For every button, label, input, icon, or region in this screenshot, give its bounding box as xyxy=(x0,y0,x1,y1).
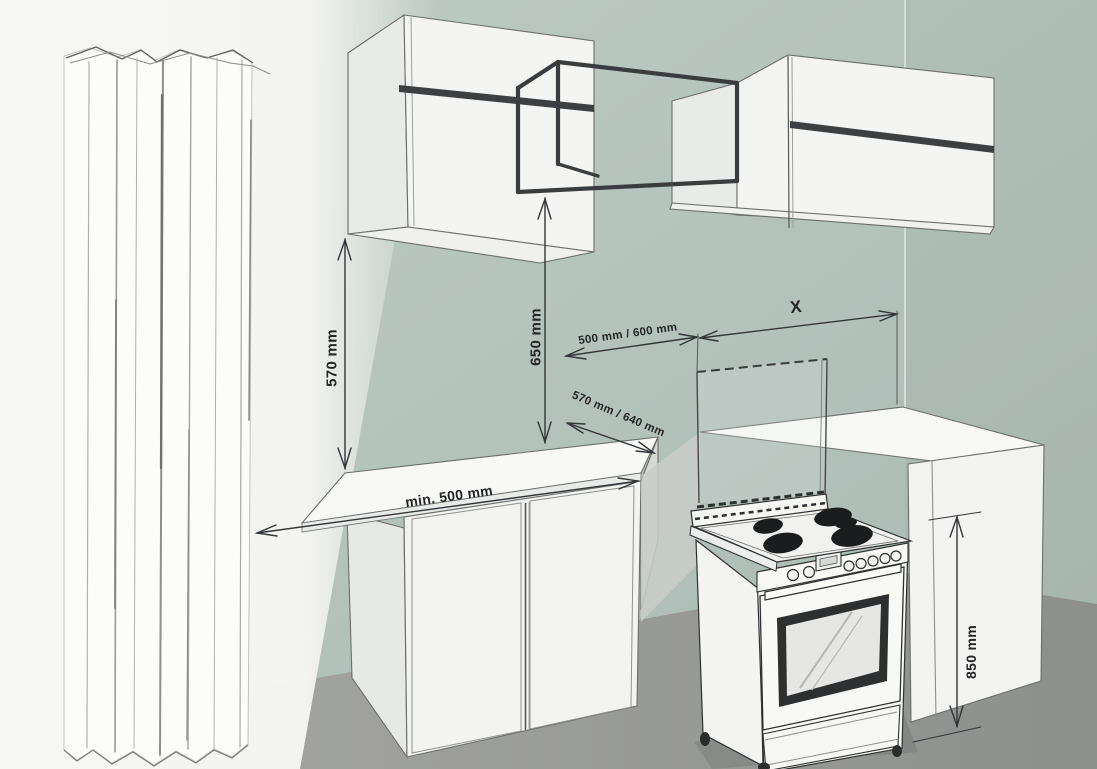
wall-cabinet-left-front xyxy=(404,15,594,252)
foot xyxy=(892,745,902,757)
curtain xyxy=(64,47,270,766)
knob xyxy=(788,570,799,581)
knob xyxy=(880,554,890,564)
dim-label-worktop-height: 850 mm xyxy=(964,625,978,679)
wall-cabinet-left-side xyxy=(348,15,408,234)
splash-panel-glass xyxy=(697,359,827,503)
splash-panel xyxy=(697,359,827,503)
knob xyxy=(891,551,901,561)
base-cabinet-right-front xyxy=(908,445,1044,722)
diagram-canvas xyxy=(0,0,1097,769)
kitchen-clearance-diagram: 570 mm 650 mm 500 mm / 600 mm X 570 mm /… xyxy=(0,0,1097,769)
cooker xyxy=(690,492,918,769)
dim-label-cooker-to-corner: X xyxy=(789,298,803,316)
dim-label-wall-cabinet-to-worktop: 570 mm xyxy=(325,329,340,387)
wall-cabinet-right-side xyxy=(672,83,737,215)
foot xyxy=(700,732,710,746)
knob xyxy=(856,559,866,569)
knob xyxy=(804,567,815,578)
knob xyxy=(844,561,854,571)
knob xyxy=(868,556,878,566)
dim-label-hood-space-to-worktop: 650 mm xyxy=(529,308,544,366)
wall-cabinet-right-front xyxy=(737,55,994,227)
curtain-fabric xyxy=(64,48,252,765)
